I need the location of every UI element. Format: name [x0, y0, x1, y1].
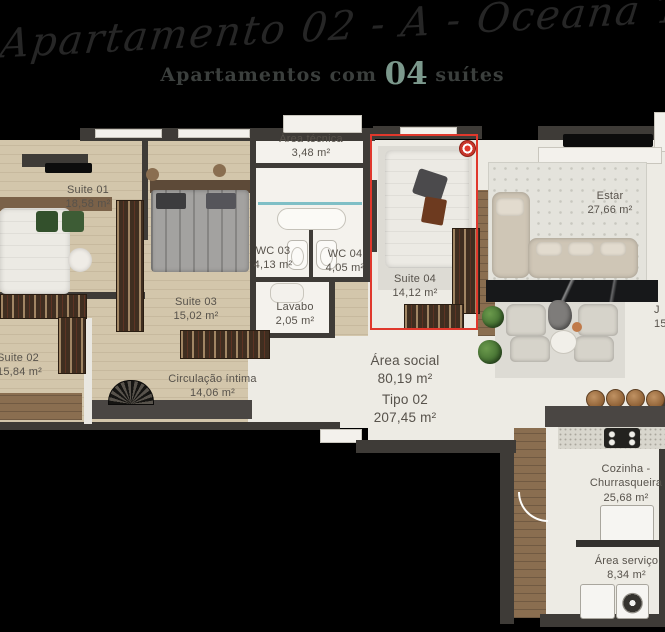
room-area: 14,12 m²: [370, 286, 460, 300]
room-name: Suite 04: [370, 272, 460, 286]
label-suite01: Suite 01 18,58 m²: [38, 183, 138, 212]
room-area: 80,19 m²: [345, 370, 465, 388]
shower-glass: [258, 202, 362, 205]
room-name: Suite 01: [38, 183, 138, 197]
dryer: [616, 584, 649, 619]
sofa-cushion-3: [568, 242, 594, 256]
room-area: 18,58 m²: [38, 197, 138, 211]
media-console-marble: [486, 280, 658, 302]
floorplan-page: Apartamento 02 - A - Oceana Tower Aparta…: [0, 0, 665, 632]
pillow-suite03-1: [156, 193, 186, 209]
wall-wing-bottom-thin: [0, 422, 340, 430]
room-name: Estar: [565, 189, 655, 203]
room-area: 27,66 m²: [565, 203, 655, 217]
room-area: 207,45 m²: [345, 409, 465, 427]
window-suite03: [178, 129, 250, 138]
bath-counter: [277, 208, 346, 230]
subtitle-number: 04: [385, 56, 428, 92]
window-area-tecnica: [283, 115, 362, 133]
label-wc03: WC 03 4,13 m²: [233, 244, 313, 273]
label-estar: Estar 27,66 m²: [565, 189, 655, 218]
armchair-right-seat: [574, 336, 614, 362]
label-lavabo: Lavabo 2,05 m²: [255, 300, 335, 329]
tv-estar: [563, 134, 653, 147]
room-name: Área social: [345, 352, 465, 370]
label-suite03: Suite 03 15,02 m²: [151, 295, 241, 324]
pillow-suite03-2: [206, 193, 236, 209]
cooktop-icon: [604, 428, 640, 448]
armchair-right-back: [578, 304, 618, 336]
dresser-suite02: [0, 393, 82, 420]
wall-social-bottom: [356, 440, 516, 453]
service-hall-wood-floor: [514, 428, 546, 618]
room-name: Suite 02: [0, 351, 87, 365]
room-name: Área serviço: [584, 554, 665, 568]
room-name: WC 04: [305, 247, 385, 261]
label-area-servico: Área serviço 8,34 m²: [584, 554, 665, 583]
partial-line1: J: [654, 303, 665, 317]
window-suite01: [95, 129, 162, 138]
fridge: [600, 505, 654, 542]
wall-service-hall-left: [500, 445, 514, 624]
room-area: 15,84 m²: [0, 365, 87, 379]
room-name: Circulação íntima: [150, 372, 275, 386]
label-tipo: Tipo 02 207,45 m²: [345, 391, 465, 426]
label-area-social: Área social 80,19 m²: [345, 352, 465, 387]
plant-2: [478, 340, 502, 364]
label-partial-right-edge: J 15: [654, 303, 665, 332]
subtitle: Apartamentos com 04 suítes: [0, 56, 665, 92]
nightstand-suite03-1: [146, 168, 159, 181]
label-circulacao: Circulação íntima 14,06 m²: [150, 372, 275, 401]
pillow-green-1: [36, 211, 58, 232]
coffee-table: [550, 330, 577, 354]
subtitle-prefix: Apartamentos com: [160, 64, 377, 86]
suite04-highlight-outline: [370, 134, 478, 330]
closet-suite02-top: [0, 294, 87, 319]
tv-suite01: [45, 163, 92, 173]
bed-suite01: [0, 208, 70, 294]
red-target-icon: [459, 140, 476, 157]
label-suite04: Suite 04 14,12 m²: [370, 272, 460, 301]
closet-suite03: [180, 330, 270, 359]
room-area: 8,34 m²: [584, 568, 665, 582]
nightstand-suite03-2: [213, 164, 226, 177]
room-name: WC 03: [233, 244, 313, 258]
sofa-cushion-2: [536, 242, 562, 256]
armchair-left-seat: [510, 336, 550, 362]
washer: [580, 584, 615, 619]
column-topright: [654, 112, 665, 152]
bar-counter: [545, 406, 665, 427]
room-area: 3,48 m²: [258, 146, 364, 160]
room-area: 14,06 m²: [150, 386, 275, 400]
room-area: 25,68 m²: [584, 491, 665, 505]
closet-suite01: [116, 200, 144, 332]
room-area: 15,02 m²: [151, 309, 241, 323]
pouf-suite01: [68, 248, 92, 272]
decor-ball: [572, 322, 582, 332]
label-cozinha: Cozinha - Churrasqueira 25,68 m²: [584, 462, 665, 505]
sculpture-estar: [548, 300, 572, 330]
sofa-cushion-4: [600, 242, 626, 256]
room-name: Suite 03: [151, 295, 241, 309]
label-suite02: Suite 02 15,84 m²: [0, 351, 87, 380]
room-name: Área técnica: [258, 132, 364, 146]
pillow-green-2: [62, 211, 84, 232]
counter-shelf: [576, 540, 660, 547]
wall-area-tecnica-bottom: [256, 163, 364, 168]
wall-wc-bottom: [256, 277, 364, 282]
room-name: Tipo 02: [345, 391, 465, 409]
plant-1: [482, 306, 504, 328]
room-area: 2,05 m²: [255, 314, 335, 328]
sofa-cushion-1: [496, 198, 524, 216]
room-area: 4,13 m²: [233, 258, 313, 272]
room-name: Lavabo: [255, 300, 335, 314]
subtitle-suffix: suítes: [435, 64, 504, 86]
armchair-left-back: [506, 304, 546, 336]
room-name: Cozinha - Churrasqueira: [584, 462, 665, 491]
label-area-tecnica: Área técnica 3,48 m²: [258, 132, 364, 161]
partial-line2: 15: [654, 317, 665, 331]
